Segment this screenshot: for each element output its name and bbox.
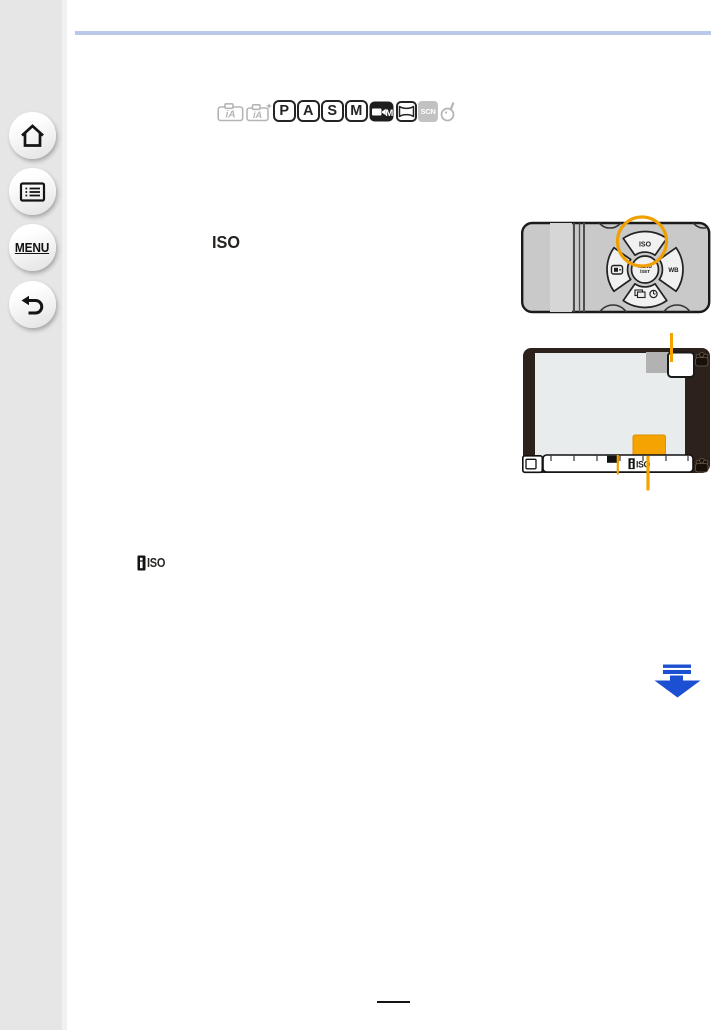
menu-button[interactable]: MENU: [9, 224, 56, 271]
mode-icon-ia: iA: [217, 101, 244, 122]
home-button[interactable]: [9, 112, 56, 159]
dpad-iso-label: ISO: [639, 242, 652, 249]
intelligent-iso-item: ISO: [137, 555, 168, 571]
svg-text:iA: iA: [253, 110, 262, 120]
iso-selected-highlight: [633, 435, 666, 456]
svg-text:iA: iA: [226, 109, 236, 120]
fn-button-icon: [612, 266, 623, 275]
menu-set-label-2: /SET: [640, 269, 650, 274]
touch-icon-bottom: [696, 458, 709, 472]
intelligent-iso-bar-icon: [629, 458, 635, 469]
back-icon: [20, 292, 46, 317]
page-number-rule: [377, 1001, 410, 1003]
contents-button[interactable]: [9, 168, 56, 215]
svg-text:M: M: [385, 107, 393, 118]
nav-sidebar: MENU: [0, 0, 67, 1030]
camera-screen-figure: ISO: [522, 330, 711, 492]
mode-icon-creative-video: M: [369, 101, 394, 122]
iso-button-keyword: ISO: [212, 232, 240, 253]
mode-icon-a: A: [297, 100, 320, 123]
intelligent-iso-icon: [137, 555, 146, 571]
contents-icon: [19, 180, 46, 204]
dpad-wb-label: WB: [668, 267, 679, 274]
mode-icon-s: S: [321, 100, 344, 123]
home-icon: [19, 123, 46, 149]
mode-icon-creative-control: [440, 100, 456, 122]
header-divider: [75, 31, 711, 35]
mode-icon-p: P: [273, 100, 296, 123]
return-touch-button: [523, 456, 543, 473]
continued-below-arrow: [652, 662, 704, 702]
menu-button-label: MENU: [15, 241, 49, 255]
mode-icon-ia-plus: iA +: [246, 101, 272, 122]
svg-text:+: +: [266, 101, 271, 111]
back-button[interactable]: [9, 281, 56, 328]
intelligent-iso-label: ISO: [147, 556, 165, 570]
manual-page-canvas: MENU iA iA + P A S M M: [0, 0, 711, 1030]
touch-icon-top: [696, 352, 709, 366]
mode-icon-m: M: [345, 100, 368, 123]
camera-rear-figure: ISO MENU /SET WB: [521, 215, 711, 315]
recording-mode-bar: iA iA + P A S M M SCN: [217, 99, 456, 123]
mode-icon-scn: SCN: [418, 101, 438, 122]
mode-icon-panorama: [396, 101, 417, 122]
